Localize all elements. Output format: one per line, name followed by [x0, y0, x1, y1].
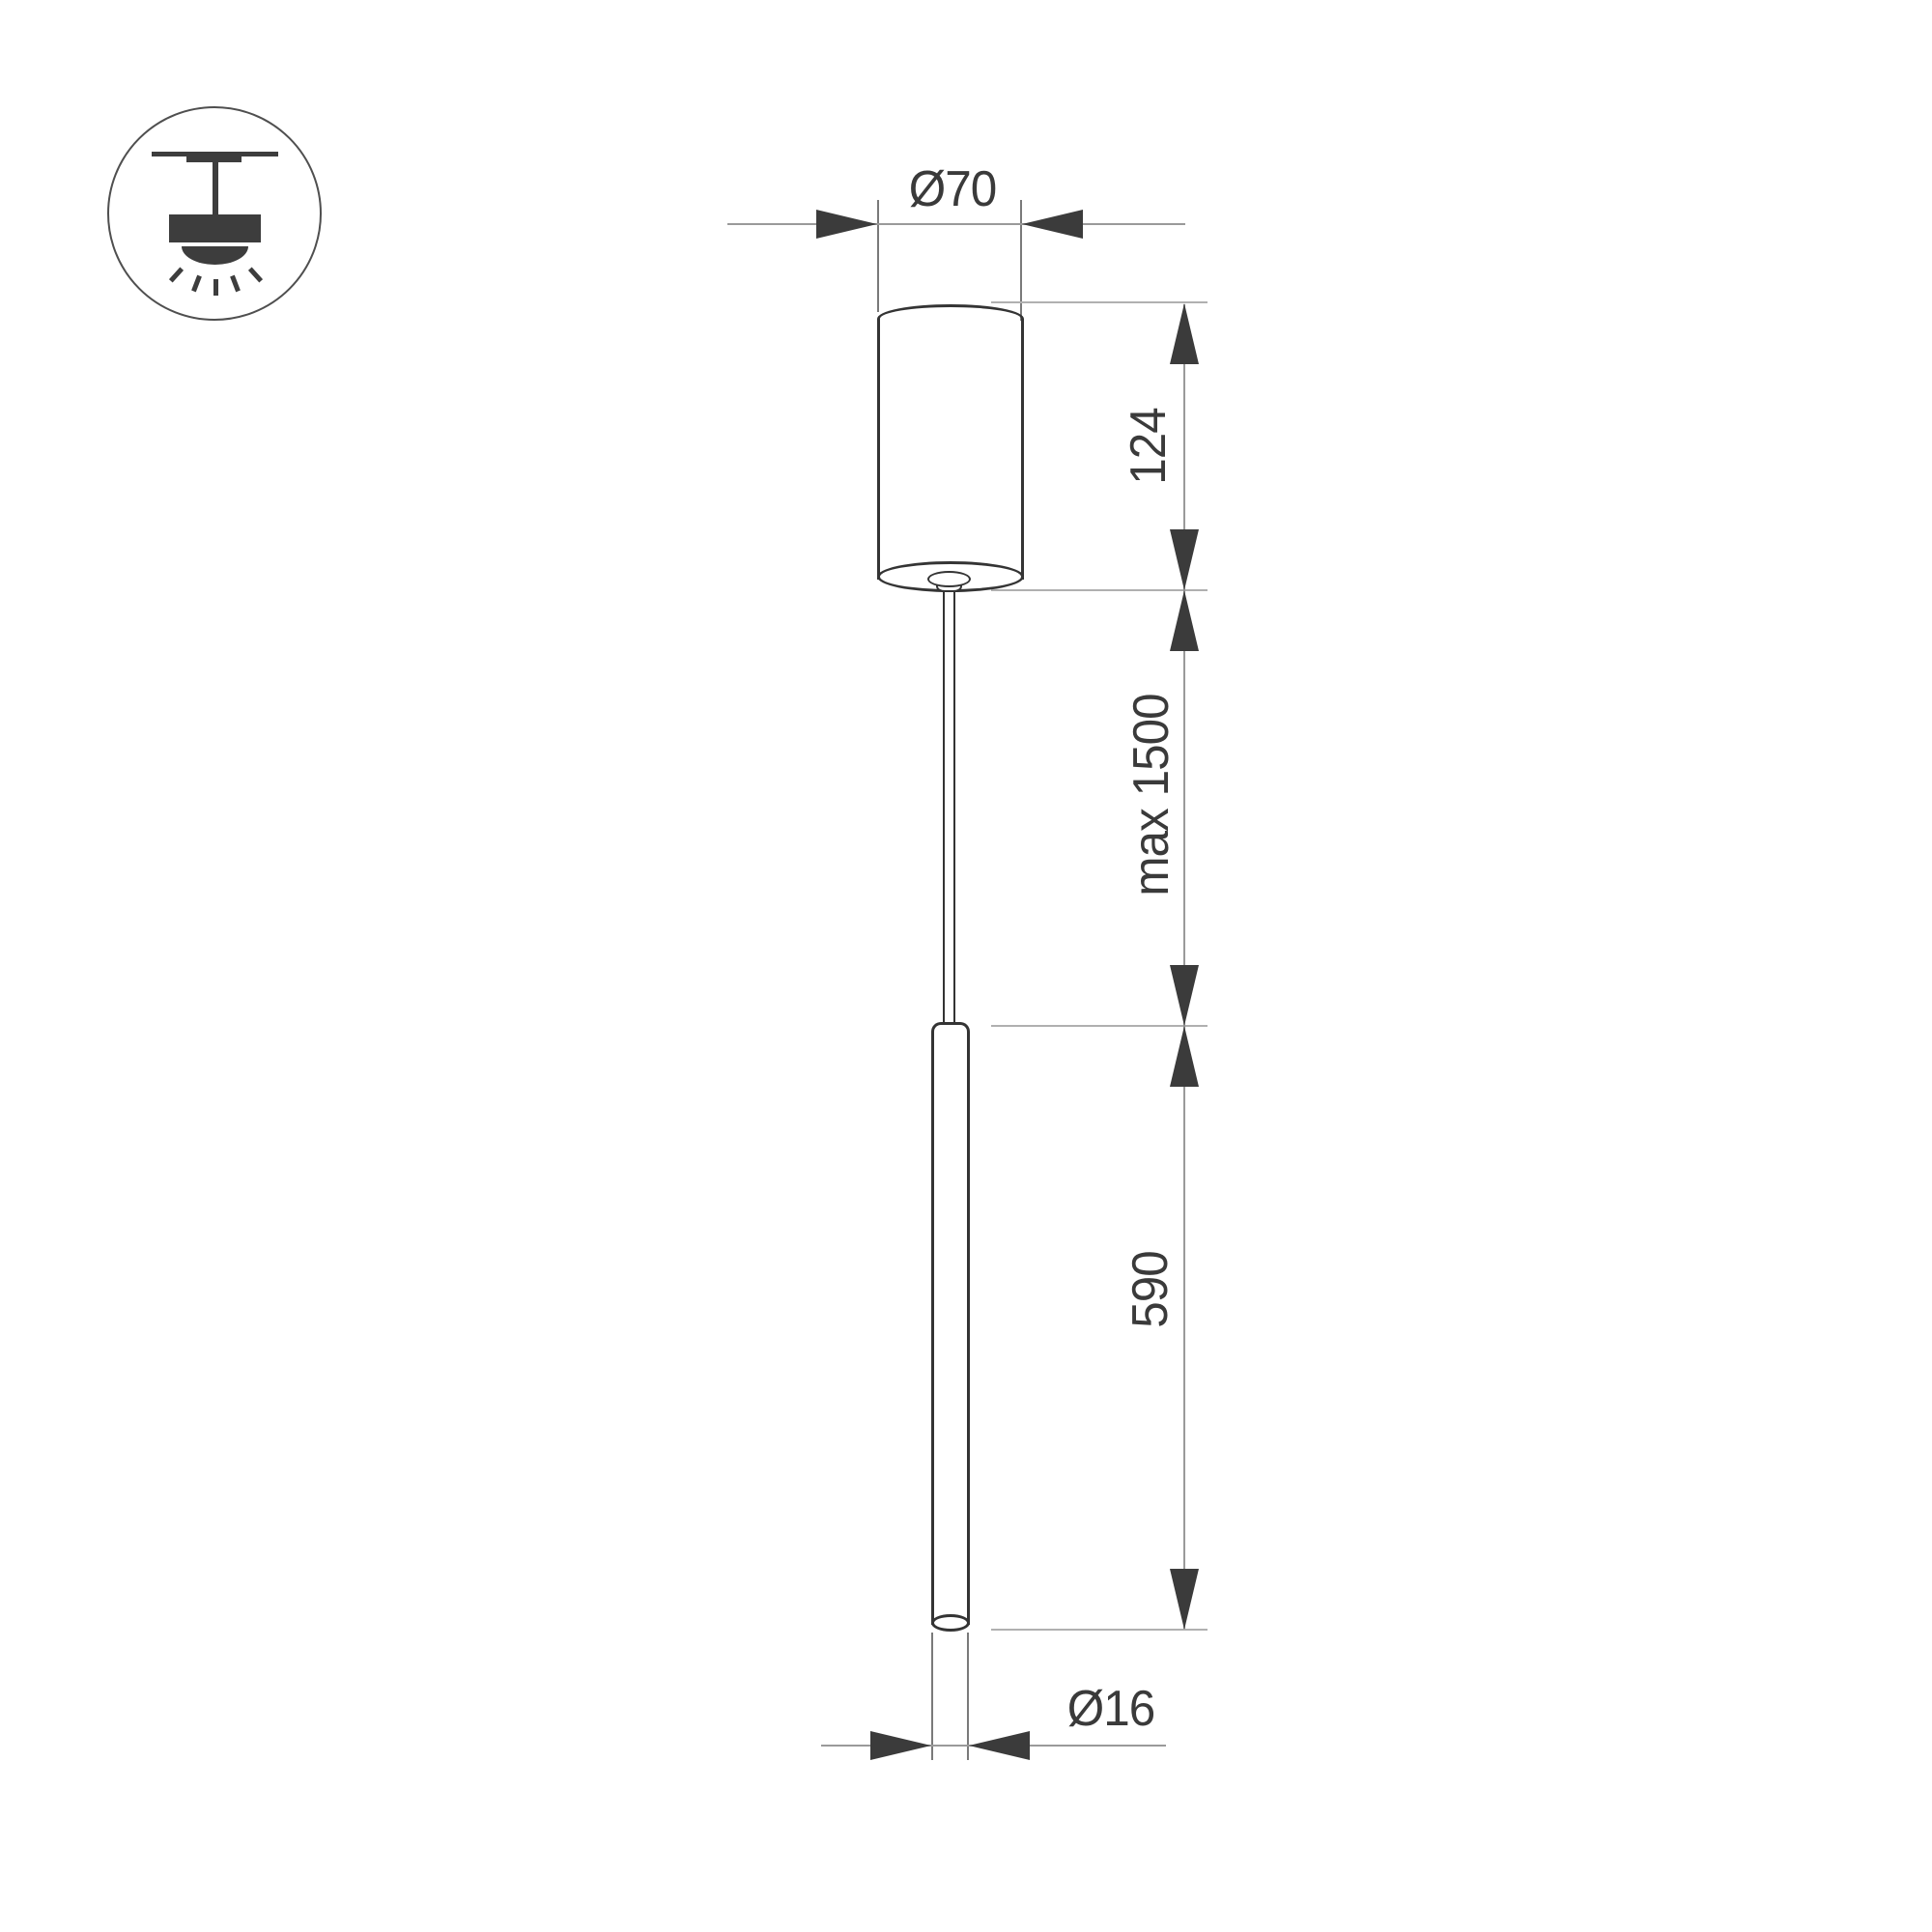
- canopy-top-arc: [877, 304, 1024, 348]
- icon-lamp-body: [169, 214, 261, 242]
- label-suspension-max: max 1500: [1122, 694, 1180, 895]
- label-canopy-height: 124: [1120, 408, 1178, 485]
- technical-drawing-canvas: Ø70 124 max 1500 590 Ø16: [0, 0, 1932, 1932]
- suspension-cable: [943, 590, 955, 1027]
- tube-bottom-ellipse: [931, 1614, 970, 1632]
- arrowhead-up: [1170, 590, 1199, 651]
- arrowhead-right: [816, 210, 877, 239]
- arrowhead-left: [1022, 210, 1083, 239]
- tube-left-extension-line: [931, 1633, 933, 1760]
- icon-stem: [213, 161, 218, 215]
- canopy-left-extension-line: [877, 200, 879, 312]
- icon-light-ray: [213, 279, 218, 296]
- arrowhead-up: [1170, 303, 1199, 364]
- cable-gland-disc: [927, 571, 971, 587]
- canopy-diameter-dimension-line: [727, 223, 1185, 225]
- arrowhead-left: [969, 1731, 1030, 1760]
- arrowhead-down: [1170, 529, 1199, 590]
- arrowhead-right: [870, 1731, 931, 1760]
- label-canopy-diameter: Ø70: [909, 160, 997, 218]
- arrowhead-down: [1170, 965, 1199, 1026]
- canopy-sides: [877, 343, 1024, 580]
- label-tube-diameter: Ø16: [1067, 1680, 1155, 1738]
- light-tube: [931, 1022, 970, 1625]
- arrowhead-down: [1170, 1569, 1199, 1630]
- label-tube-length: 590: [1122, 1251, 1179, 1328]
- arrowhead-up: [1170, 1026, 1199, 1087]
